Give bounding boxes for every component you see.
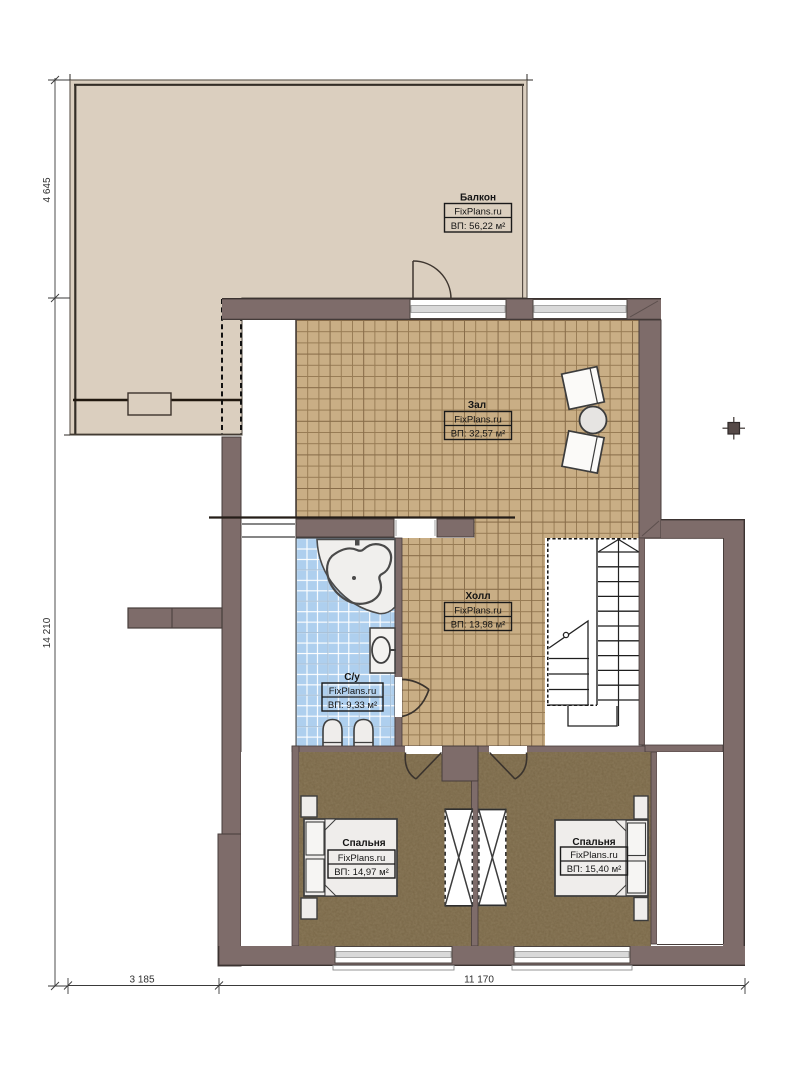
svg-text:ВП: 15,40 м²: ВП: 15,40 м²: [567, 864, 622, 875]
svg-text:FixPlans.ru: FixPlans.ru: [454, 606, 502, 617]
svg-text:ВП: 13,98 м²: ВП: 13,98 м²: [451, 620, 506, 631]
svg-text:FixPlans.ru: FixPlans.ru: [570, 850, 618, 861]
svg-text:FixPlans.ru: FixPlans.ru: [329, 686, 377, 697]
svg-text:ВП: 14,97 м²: ВП: 14,97 м²: [334, 867, 389, 878]
svg-text:ВП: 32,57 м²: ВП: 32,57 м²: [451, 429, 506, 440]
svg-text:Спальня: Спальня: [342, 838, 385, 849]
svg-text:Балкон: Балкон: [460, 193, 496, 204]
svg-text:11 170: 11 170: [464, 975, 494, 986]
svg-text:14 210: 14 210: [42, 617, 53, 648]
svg-text:Зал: Зал: [468, 400, 486, 411]
svg-text:ВП: 9,33 м²: ВП: 9,33 м²: [328, 700, 377, 711]
svg-text:С/у: С/у: [344, 672, 360, 683]
svg-text:Холл: Холл: [465, 591, 490, 602]
svg-text:ВП: 56,22 м²: ВП: 56,22 м²: [451, 221, 506, 232]
svg-text:FixPlans.ru: FixPlans.ru: [454, 415, 502, 426]
svg-text:4 645: 4 645: [42, 177, 53, 202]
svg-text:FixPlans.ru: FixPlans.ru: [454, 207, 502, 218]
svg-text:FixPlans.ru: FixPlans.ru: [338, 853, 386, 864]
svg-text:3 185: 3 185: [129, 975, 154, 986]
